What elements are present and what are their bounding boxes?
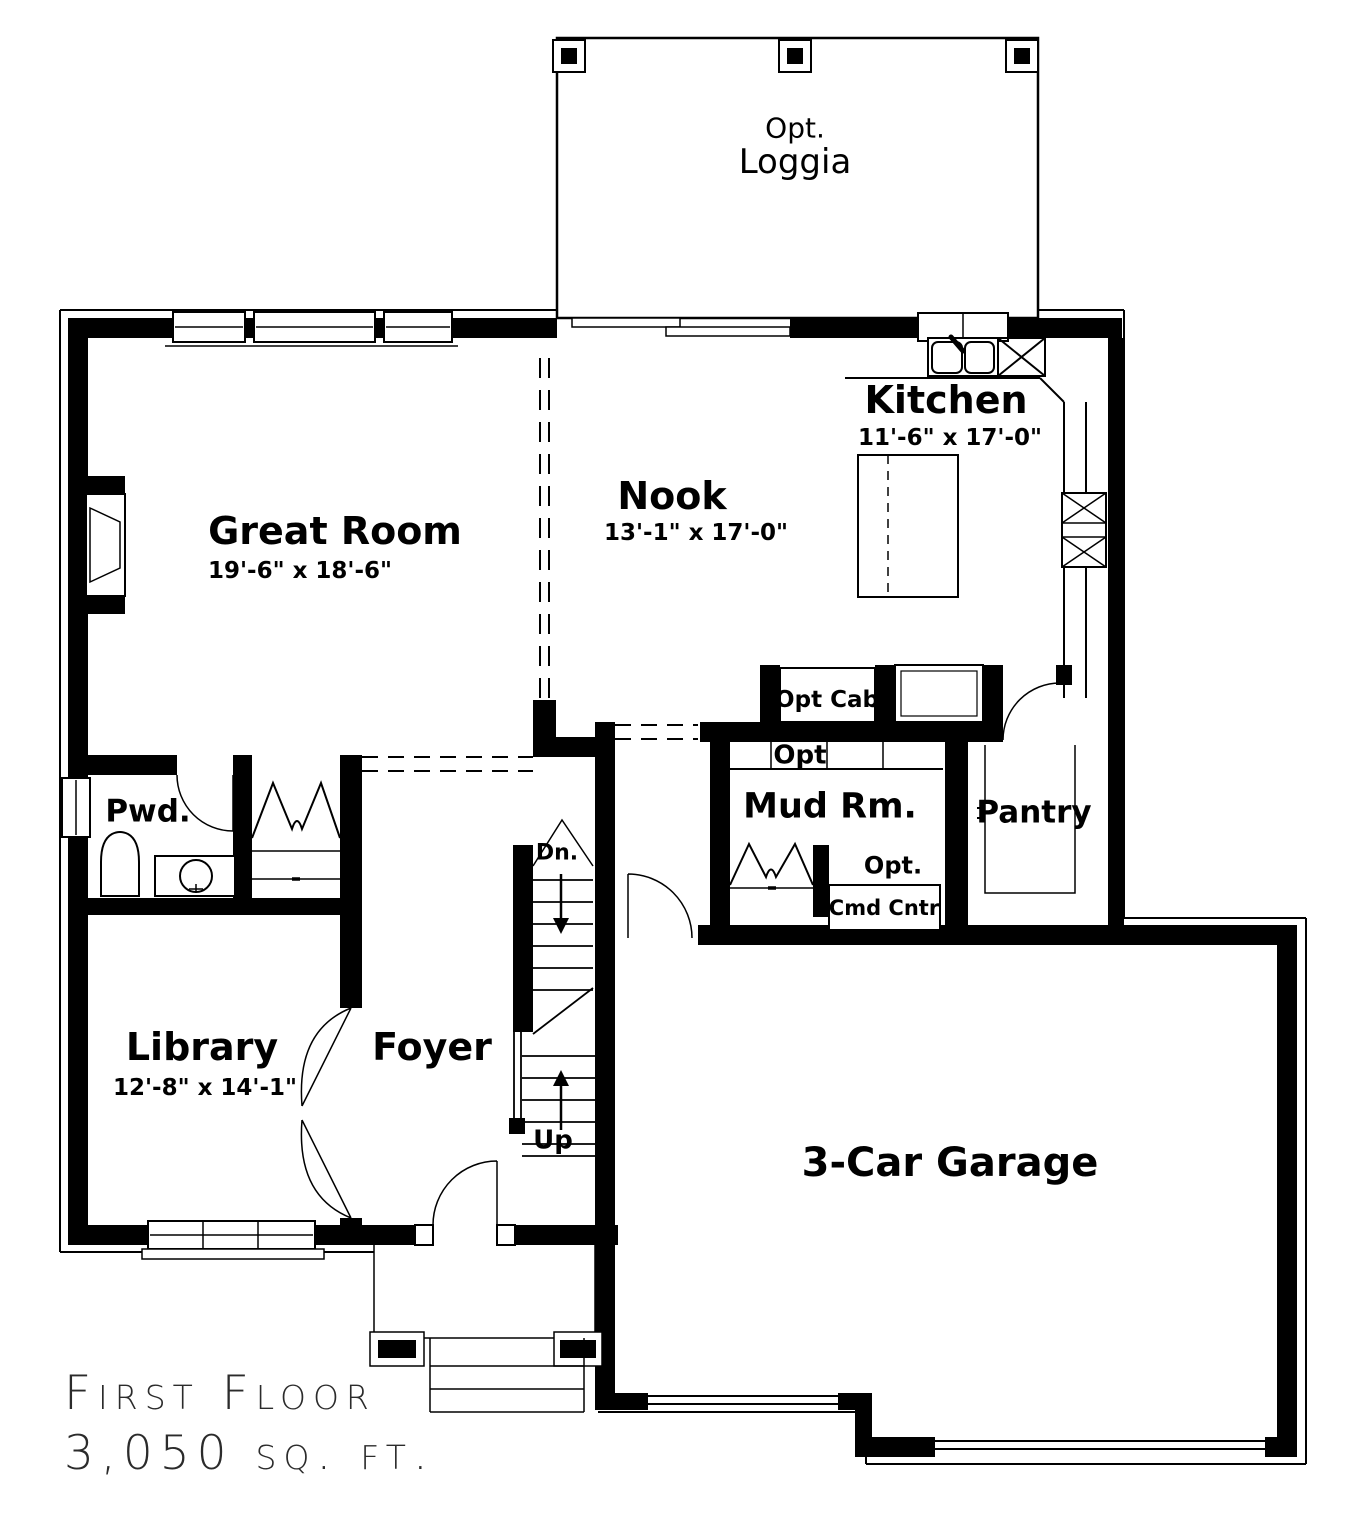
stairs-up-label: Up bbox=[533, 1127, 573, 1154]
kitchen-sink bbox=[928, 337, 998, 376]
loggia-posts bbox=[553, 40, 1038, 72]
stair-railing bbox=[509, 1032, 525, 1134]
great-room-dims-label: 19'-6" x 18'-6" bbox=[208, 559, 392, 583]
wall-ovens bbox=[1062, 493, 1106, 567]
pantry-label: Pantry bbox=[976, 797, 1091, 830]
front-door-sidelights bbox=[415, 1225, 515, 1245]
powder-side-window bbox=[62, 778, 90, 837]
library-dims-label: 12'-8" x 14'-1" bbox=[113, 1076, 297, 1100]
mud-bench bbox=[730, 742, 943, 769]
floor-plan-drawing bbox=[0, 0, 1355, 1516]
opt-cab-label: Opt Cab bbox=[775, 688, 879, 712]
loggia-opt-label: Opt. bbox=[765, 113, 825, 142]
floor-plan: Opt. Loggia Great Room 19'-6" x 18'-6" N… bbox=[0, 0, 1355, 1516]
library-french-doors bbox=[301, 1008, 351, 1218]
plan-title: First Floor bbox=[64, 1366, 376, 1421]
kitchen-window bbox=[918, 313, 1008, 341]
powder-label: Pwd. bbox=[105, 796, 190, 829]
garage-entry-door bbox=[628, 874, 692, 938]
nook-dims-label: 13'-1" x 17'-0" bbox=[604, 521, 788, 545]
hall-closet-doors bbox=[249, 783, 343, 879]
fireplace bbox=[86, 476, 125, 614]
nook-slider-door bbox=[572, 318, 790, 336]
cmd-label: Cmd Cntr bbox=[829, 897, 939, 919]
plan-sqft: 3,050 sq. ft. bbox=[64, 1426, 435, 1481]
cmd-prefix-label: Opt. bbox=[864, 853, 922, 878]
mud-room-label: Mud Rm. bbox=[743, 789, 917, 826]
kitchen-island bbox=[858, 455, 958, 597]
front-door bbox=[433, 1161, 497, 1225]
opt-bench-label: Opt bbox=[773, 742, 826, 769]
mud-closet-doors bbox=[730, 844, 813, 888]
library-label: Library bbox=[126, 1028, 278, 1068]
locker-cubby bbox=[895, 665, 983, 722]
powder-toilet bbox=[101, 832, 139, 896]
down-arrow-icon bbox=[553, 874, 569, 934]
foyer-label: Foyer bbox=[372, 1028, 492, 1068]
kitchen-dims-label: 11'-6" x 17'-0" bbox=[858, 426, 1042, 450]
garage-doors bbox=[648, 1396, 1265, 1449]
great-room-windows bbox=[165, 312, 458, 346]
library-window bbox=[142, 1221, 324, 1259]
nook-label: Nook bbox=[617, 477, 726, 517]
great-room-label: Great Room bbox=[208, 512, 462, 552]
powder-vanity bbox=[155, 856, 235, 896]
kitchen-label: Kitchen bbox=[864, 381, 1027, 421]
pantry-door bbox=[1003, 683, 1060, 740]
stairs-down-label: Dn. bbox=[536, 841, 578, 864]
dashed-openings bbox=[362, 358, 698, 771]
garage-label: 3-Car Garage bbox=[802, 1142, 1099, 1184]
porch-columns bbox=[370, 1332, 602, 1366]
cooktop bbox=[998, 338, 1045, 376]
porch bbox=[370, 1245, 602, 1412]
loggia-name-label: Loggia bbox=[739, 145, 852, 181]
